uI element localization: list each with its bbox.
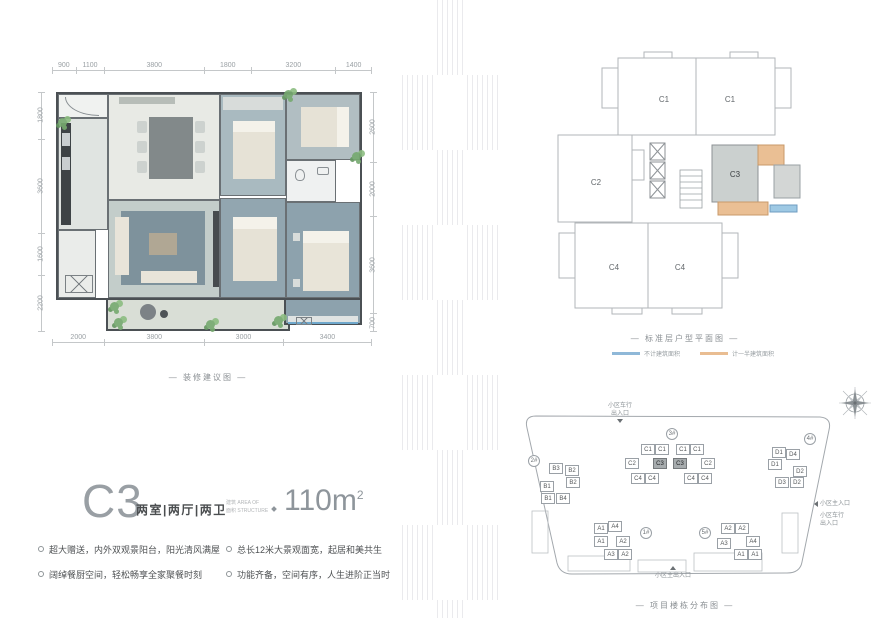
site-unit: D1 — [772, 447, 786, 458]
sideboard — [119, 97, 175, 104]
site-unit: A1 — [748, 549, 762, 560]
tv-wall — [213, 211, 219, 287]
sofa-2 — [141, 271, 197, 283]
unit-rooms-label: 两室|两厅|两卫 — [136, 501, 227, 518]
site-unit: C2 — [701, 458, 715, 469]
balcony-wall — [106, 298, 290, 331]
dim-label: 1800 — [220, 62, 236, 69]
dim-label: 3400 — [320, 334, 336, 341]
bullet-item: 功能齐备，空间有序，人生进阶正当时 — [226, 568, 396, 581]
nightstand — [293, 279, 300, 287]
area-label: 建筑 AREA OF 面积 STRUCTURE — [226, 500, 268, 515]
legend-label: 计一半建筑面积 — [732, 349, 774, 358]
bullet-text: 总长12米大景观面宽，起居和美共生 — [237, 543, 382, 556]
dim-label: 1800 — [38, 108, 45, 124]
dims-right: 2600 2000 3600 700 — [366, 92, 380, 332]
dims-bottom: 2000 3800 3000 3400 — [52, 332, 372, 346]
bullet-dot — [38, 546, 44, 552]
bullet-item: 阔绰餐厨空间，轻松畅享全家聚餐时刻 — [38, 568, 224, 581]
site-unit: C4 — [698, 473, 712, 484]
area-label-line1: 建筑 AREA OF — [226, 500, 268, 508]
area-label-line2: 面积 STRUCTURE — [226, 508, 268, 516]
building-1-badge: 1# — [640, 527, 652, 539]
sofa — [115, 217, 129, 275]
chair — [195, 141, 205, 153]
nightstand — [293, 233, 300, 241]
compass-icon — [838, 386, 872, 420]
area-sup: 2 — [357, 488, 364, 502]
site-unit: D2 — [793, 466, 807, 477]
entrance-text: 出入口 — [820, 521, 850, 529]
site-unit: C1 — [676, 444, 690, 455]
legend-label: 不计建筑面积 — [644, 349, 680, 358]
bullet-text: 阔绰餐厨空间，轻松畅享全家聚餐时刻 — [49, 568, 202, 581]
site-unit: A2 — [735, 523, 749, 534]
bullet-text: 超大赠送，内外双观景阳台，阳光清风满屋 — [49, 543, 220, 556]
dim-label: 2000 — [370, 181, 377, 197]
dim-label: 1600 — [38, 246, 45, 262]
svg-text:C1: C1 — [659, 95, 670, 104]
site-unit: A2 — [721, 523, 735, 534]
site-unit: A3 — [604, 549, 618, 560]
ac-unit-box — [296, 317, 312, 325]
building-5-badge: 5# — [699, 527, 711, 539]
entrance-right-vehicle-label: 小区车行 出入口 — [820, 513, 850, 528]
site-unit: B2 — [565, 465, 579, 476]
site-unit: D1 — [768, 459, 782, 470]
bullet-text: 功能齐备，空间有序，人生进阶正当时 — [237, 568, 390, 581]
site-plan-caption: — 项目楼栋分布图 — — [540, 600, 830, 611]
dining-table — [149, 117, 193, 179]
building-4-badge: 4# — [804, 433, 816, 445]
site-unit: C4 — [645, 473, 659, 484]
site-unit: B3 — [549, 463, 563, 474]
bullets-col1: 超大赠送，内外双观景阳台，阳光清风满屋 阔绰餐厨空间，轻松畅享全家聚餐时刻 — [38, 543, 224, 593]
dim-label: 3600 — [370, 257, 377, 273]
site-unit: C1 — [690, 444, 704, 455]
standard-floor-caption: — 标准层户型平面图 — — [555, 333, 815, 344]
site-unit: C1 — [641, 444, 655, 455]
lounge-chair — [140, 304, 156, 320]
site-unit: A2 — [616, 536, 630, 547]
bullet-dot — [226, 571, 232, 577]
pillow — [233, 217, 277, 229]
dim-label: 3800 — [146, 334, 162, 341]
site-plan: C1 C1 C1 C1 C2 C3 C3 C2 C4 C4 C4 C4 3# B… — [510, 385, 862, 597]
plant — [206, 320, 215, 329]
stove — [62, 133, 70, 146]
legend-no-area: 不计建筑面积 — [612, 349, 680, 358]
dim-label: 900 — [58, 62, 70, 69]
bullet-dot — [226, 546, 232, 552]
wardrobe — [223, 97, 283, 110]
legend-swatch-blue — [612, 352, 640, 355]
svg-text:C3: C3 — [730, 170, 741, 179]
site-unit-c3-highlight: C3 — [653, 458, 667, 469]
unit-c3-highlight — [712, 145, 800, 215]
side-table — [160, 310, 168, 318]
entrance-text: 小区车行 — [602, 403, 638, 411]
stairwell — [680, 170, 702, 208]
plant — [114, 318, 123, 327]
floorplan-canvas — [56, 92, 362, 332]
plant — [110, 302, 119, 311]
bullet-dot — [38, 571, 44, 577]
plant — [284, 90, 293, 99]
pillow — [233, 121, 275, 132]
plant — [274, 316, 283, 325]
brochure-page: 900 1100 3800 1800 3200 1400 2000 3800 3… — [0, 0, 892, 618]
chair — [137, 121, 147, 133]
legend-half-area: 计一半建筑面积 — [700, 349, 774, 358]
site-boundary — [526, 416, 829, 574]
toilet — [295, 169, 305, 181]
entrance-right-main-label: 小区主入口 — [820, 501, 860, 509]
entrance-text: 小区车行 — [820, 513, 850, 521]
dim-label: 3000 — [236, 334, 252, 341]
dims-left: 1800 3600 1600 2200 — [34, 92, 48, 332]
svg-text:C4: C4 — [609, 263, 620, 272]
dim-label: 2600 — [370, 119, 377, 135]
unit-area: 110m2 — [284, 486, 364, 516]
basin — [317, 167, 329, 175]
bedroom-3 — [220, 94, 286, 196]
site-unit: B2 — [566, 477, 580, 488]
site-unit: A4 — [746, 536, 760, 547]
legend-swatch-orange — [700, 352, 728, 355]
bathroom — [286, 160, 336, 202]
site-unit: D3 — [775, 477, 789, 488]
living-room — [108, 200, 220, 298]
dim-label: 1100 — [83, 62, 98, 69]
site-unit: D2 — [790, 477, 804, 488]
svg-text:C4: C4 — [675, 263, 686, 272]
master-bedroom — [286, 202, 360, 298]
site-unit: B1 — [540, 481, 554, 492]
dim-label: 2000 — [70, 334, 86, 341]
entrance-top-label: 小区车行 出入口 — [602, 403, 638, 418]
unit-code: C3 — [82, 478, 143, 524]
plant — [352, 152, 361, 161]
dim-label: 3200 — [286, 62, 302, 69]
dim-label: 700 — [370, 317, 377, 329]
floorplan-caption: — 装修建议图 — — [108, 372, 308, 383]
kitchen — [58, 118, 108, 230]
guest-room — [286, 94, 360, 160]
bullet-item: 超大赠送，内外双观景阳台，阳光清风满屋 — [38, 543, 224, 556]
site-unit: A3 — [717, 538, 731, 549]
entrance-text: 出入口 — [602, 411, 638, 419]
site-unit: C4 — [631, 473, 645, 484]
site-unit: C1 — [655, 444, 669, 455]
dim-label: 3800 — [147, 62, 163, 69]
chair — [137, 161, 147, 173]
site-unit: A1 — [734, 549, 748, 560]
bullet-item: 总长12米大景观面宽，起居和美共生 — [226, 543, 396, 556]
coffee-table — [149, 233, 177, 255]
entry-door-arc — [65, 97, 99, 116]
standard-floor-diagram: C1 C1 C2 C3 C4 C4 — [552, 50, 818, 316]
site-unit: A4 — [608, 521, 622, 532]
entrance-bottom-label: 小区主出入口 — [650, 573, 696, 581]
site-unit: D4 — [786, 449, 800, 460]
bedroom-2 — [220, 198, 286, 298]
entrance-marker-icon — [670, 566, 676, 570]
site-unit: C4 — [684, 473, 698, 484]
utility-room — [58, 230, 96, 298]
chair — [195, 121, 205, 133]
site-unit: A2 — [618, 549, 632, 560]
entry-porch — [58, 94, 108, 118]
elevator-core — [650, 143, 665, 198]
entrance-marker-icon — [617, 419, 623, 423]
area-value: 110m — [284, 484, 357, 517]
dim-label: 2200 — [38, 295, 45, 311]
building-3-badge: 3# — [666, 428, 678, 440]
svg-text:C2: C2 — [591, 178, 602, 187]
pillow — [337, 107, 349, 147]
entrance-marker-icon — [814, 501, 818, 507]
site-unit: C2 — [625, 458, 639, 469]
chair — [137, 141, 147, 153]
chair — [195, 161, 205, 173]
dining-room — [108, 94, 220, 200]
site-unit: B1 — [541, 493, 555, 504]
dim-label: 3600 — [38, 178, 45, 194]
site-unit-c3-highlight: C3 — [673, 458, 687, 469]
site-unit: B4 — [556, 493, 570, 504]
building-2-badge: 2# — [528, 455, 540, 467]
washer-box — [65, 275, 93, 293]
site-unit: A1 — [594, 523, 608, 534]
site-unit: A1 — [594, 536, 608, 547]
stripe-watermark — [402, 0, 498, 618]
diamond-separator — [271, 506, 277, 512]
bullets-col2: 总长12米大景观面宽，起居和美共生 功能齐备，空间有序，人生进阶正当时 — [226, 543, 396, 593]
dim-label: 1400 — [346, 62, 362, 69]
plant — [58, 118, 67, 127]
dims-top: 900 1100 3800 1800 3200 1400 — [52, 60, 372, 74]
svg-text:C1: C1 — [725, 95, 736, 104]
pillow — [303, 231, 349, 243]
sink — [62, 157, 70, 170]
